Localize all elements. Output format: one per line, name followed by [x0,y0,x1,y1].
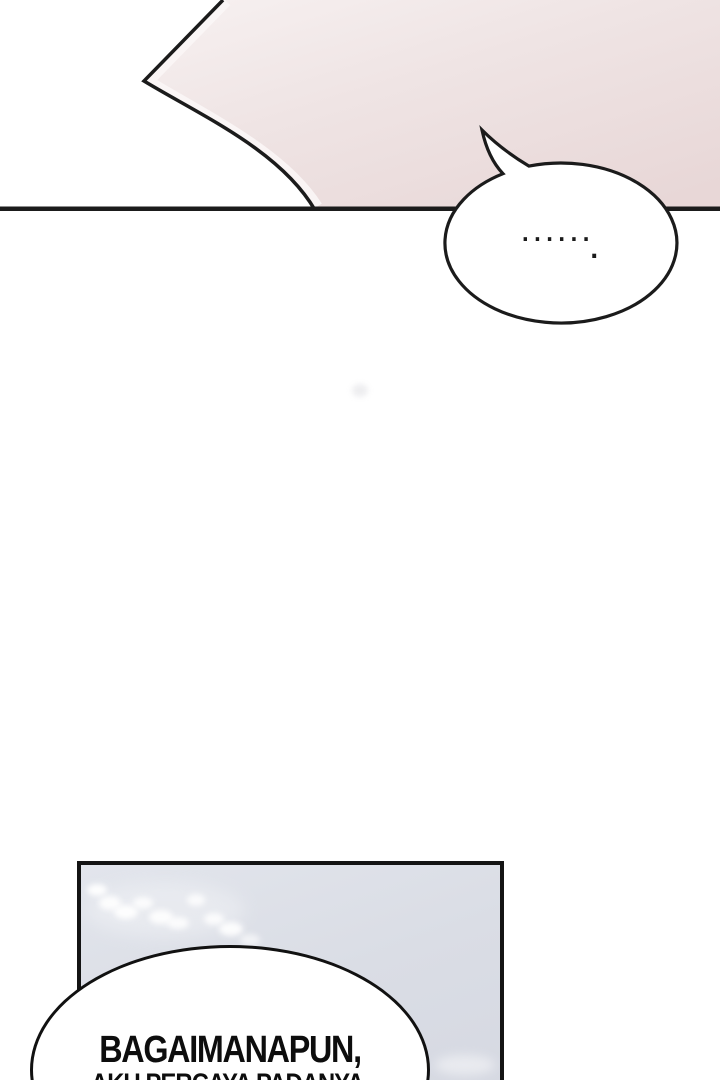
speech-bubble-1-text: ...... . [519,224,629,264]
panel-top [0,0,720,340]
cloud [240,934,260,946]
cloud [167,917,189,929]
comic-page: ...... . BAGAIMANAPUN, AKU PERCAYA PADAN… [0,0,720,1080]
speech-line-1: BAGAIMANAPUN, [63,1032,398,1068]
cloud [435,1055,495,1075]
trailing-period: . [587,238,601,262]
ellipsis-dots: ...... [519,224,592,245]
speech-line-2-clipped: AKU PERCAYA PADANYA. [57,1070,404,1080]
smudge-artifact [352,384,368,397]
cloud [133,897,153,909]
cloud [219,922,243,936]
skin-shape [144,0,720,210]
cloud [204,913,224,925]
cloud [114,905,138,919]
cloud [87,884,107,896]
cloud [187,894,205,906]
